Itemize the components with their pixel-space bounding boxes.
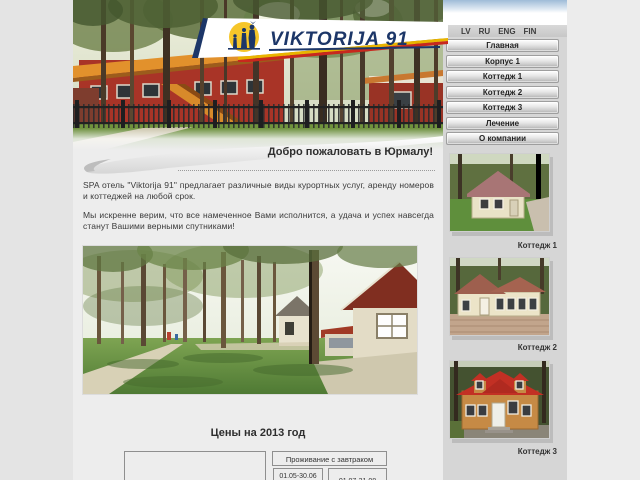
language-link-ru[interactable]: RU [479,27,491,36]
cottage-label-2: Коттедж 2 [518,343,557,352]
cottage-photo-1[interactable] [449,153,550,232]
menu-item-home[interactable]: Главная [446,39,559,52]
language-link-fin[interactable]: FIN [524,27,537,36]
menu-item-cottage-2[interactable]: Коттедж 2 [446,86,559,99]
menu-item-treatment[interactable]: Лечение [446,117,559,130]
prices-heading: Цены на 2013 год [73,427,443,439]
cottage-label-3: Коттедж 3 [518,447,557,456]
menu-item-cottage-1[interactable]: Коттедж 1 [446,70,559,83]
sidebar-top-gradient [443,0,567,13]
sidebar: LV RU ENG FIN Главная Корпус 1 Коттедж 1… [443,0,567,480]
language-link-eng[interactable]: ENG [498,27,515,36]
cottage-label-1: Коттедж 1 [518,241,557,250]
dotted-separator [178,170,435,171]
menu-item-cottage-3[interactable]: Коттедж 3 [446,101,559,114]
sidebar-white-strip [443,13,567,25]
main-photo [83,246,417,394]
price-table-group-header: Проживание с завтраком [272,451,387,466]
logo-banner[interactable]: VIKTORIJA 91 [190,12,458,62]
language-link-lv[interactable]: LV [461,27,471,36]
page-background-right [567,0,640,480]
price-table-period-2: 01.07-31.08 [328,468,387,480]
menu-item-korpus-1[interactable]: Корпус 1 [446,55,559,68]
logo-text: VIKTORIJA 91 [270,29,409,50]
cottage-photo-2[interactable] [449,257,550,336]
intro-paragraph-1: SPA отель "Viktorija 91" предлагает разл… [83,180,434,202]
page: Добро пожаловать в Юрмалу! SPA отель "Vi… [0,0,640,480]
intro-paragraph-2: Мы искренне верим, что все намеченное Ва… [83,210,434,232]
price-table-left-cell [124,451,266,480]
content-column: Добро пожаловать в Юрмалу! SPA отель "Vi… [73,0,443,480]
price-table-period-1: 01.05-30.06 [273,468,323,480]
menu-item-about[interactable]: О компании [446,132,559,145]
language-bar: LV RU ENG FIN [443,25,567,37]
welcome-heading: Добро пожаловать в Юрмалу! [268,146,433,158]
cottage-photo-3[interactable] [449,360,550,439]
